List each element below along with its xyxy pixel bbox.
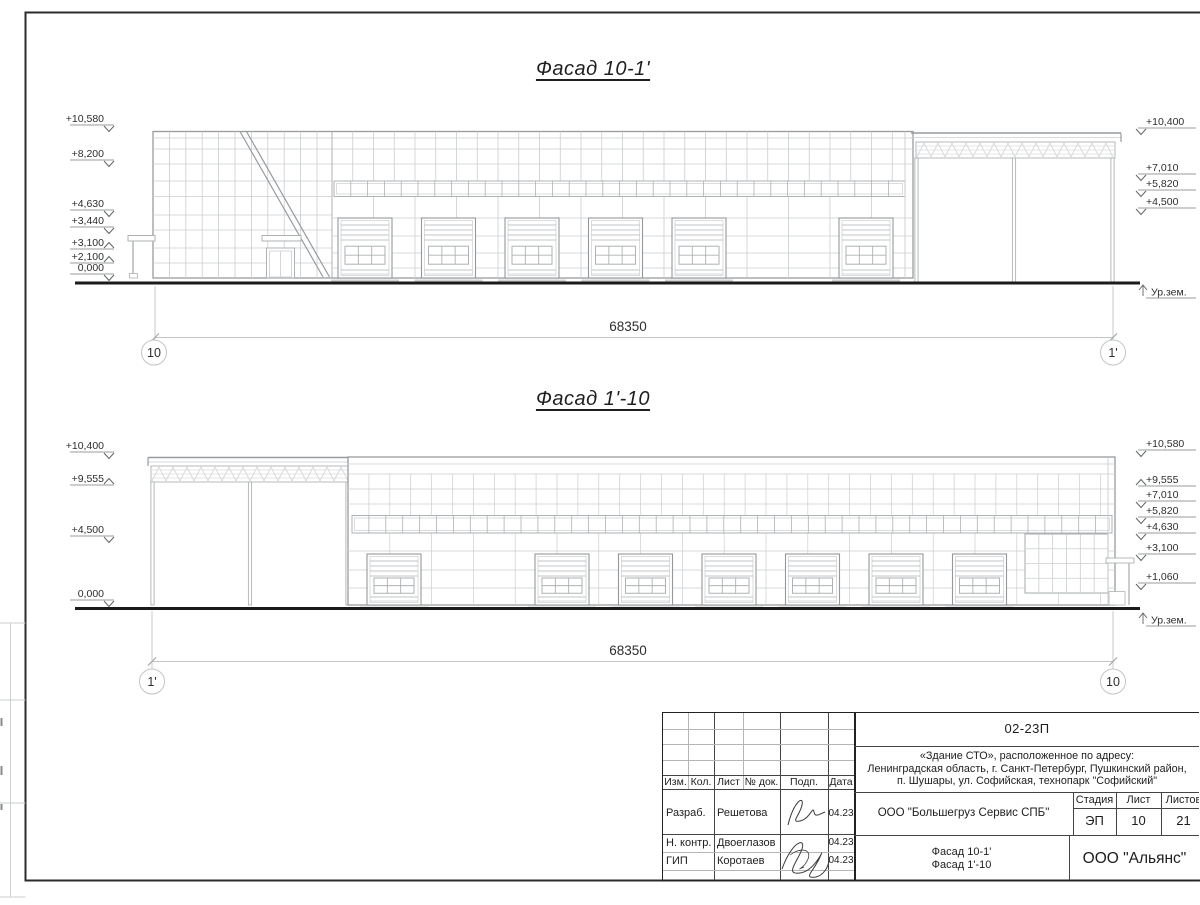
facade2-building [75,457,1140,609]
col-header-doc: № док. [743,775,780,789]
facade1-left-elevation-0: +10,580 [66,113,104,125]
facade2-left-elevation-1: +9,555 [72,473,105,485]
facade2-title: Фасад 1'-10 [0,388,1186,411]
col-header-date: Дата [828,775,854,789]
facade1-right-elevation-2: +5,820 [1146,178,1179,190]
project-address-line1: «Здание СТО», расположенное по адресу: [920,750,1134,762]
facade1-left-elevation-1: +8,200 [72,148,105,160]
total-sheets-label: Листов [1161,792,1199,808]
facade1-title-text: Фасад 10-1' [536,58,650,80]
facade2-right-elevation-5: +3,100 [1146,542,1179,554]
project-address: «Здание СТО», расположенное по адресу: Л… [854,747,1199,791]
facade1-left-elevation-4: +3,100 [72,237,105,249]
facade1-left-elevation-3: +3,440 [72,215,105,227]
name-developer: Решетова [714,801,783,825]
drawing-sheet: 68350101'683501'10+10,580+8,200+4,630+3,… [0,0,1200,900]
facade2-right-elevation-0: +10,580 [1146,438,1184,450]
developer-organization: ООО "Альянс" [1069,835,1199,881]
signature-developer [780,791,828,835]
col-header-list: Лист [714,775,743,789]
total-sheets-value: 21 [1161,808,1199,835]
facade2-left-elevation-3: 0,000 [78,588,104,600]
facade1-building [75,132,1140,284]
facade2-left-elevation-0: +10,400 [66,440,104,452]
sheet-label: Лист [1116,792,1161,808]
role-developer: Разраб. [663,801,717,825]
facade1-right-elevation-1: +7,010 [1146,162,1179,174]
facade2-dimension-value: 68350 [609,643,647,658]
facade2-right-elevation-4: +4,630 [1146,521,1179,533]
facade2-right-elevation-2: +7,010 [1146,489,1179,501]
role-ncontrol: Н. контр. [663,834,717,852]
stage-value: ЭП [1073,808,1116,835]
facade2-right-elevation-3: +5,820 [1146,505,1179,517]
facade2-left-elevation-2: +4,500 [72,524,105,536]
project-address-line2: Ленинградская область, г. Санкт-Петербур… [867,763,1186,775]
date-developer: 04.23 [828,805,854,823]
facade1-dimension-value: 68350 [609,319,647,334]
title-block: Изм. Кол. Лист № док. Подп. Дата Разраб.… [662,712,1199,881]
left-margin-strip [0,623,26,897]
facade1-ground-level-label: Ур.зем. [1151,287,1187,299]
role-gip: ГИП [663,852,717,870]
stage-label: Стадия [1073,792,1116,808]
name-gip: Коротаев [714,852,783,870]
facade1-title: Фасад 10-1' [0,58,1186,81]
facade1-left-elevation-2: +4,630 [72,198,105,210]
sheet-title: Фасад 10-1' Фасад 1'-10 [854,835,1069,881]
sheet-title-line1: Фасад 10-1' [932,846,992,859]
facade1-right-elevation-0: +10,400 [1146,116,1184,128]
facade1-axis-left-bubble-label: 10 [147,346,161,360]
sheet-number: 10 [1116,808,1161,835]
facade2-right-elevation-1: +9,555 [1146,474,1179,486]
facade2-title-text: Фасад 1'-10 [536,388,650,410]
project-address-line3: п. Шушары, ул. Софийская, технопарк "Соф… [897,775,1157,787]
project-code: 02-23П [854,713,1199,746]
facade2-axis-right-bubble-label: 10 [1106,675,1120,689]
facade1-dimension: 68350101' [142,286,1126,365]
signature-approvers [776,831,834,881]
facade2-right-elevation-6: +1,060 [1146,571,1179,583]
facade2-ground-level-label: Ур.зем. [1151,615,1187,627]
facade1-left-elevation-6: 0,000 [78,262,104,274]
name-ncontrol: Двоеглазов [714,834,783,852]
sheet-title-line2: Фасад 1'-10 [932,859,992,872]
facade2-axis-left-bubble-label: 1' [147,675,156,689]
facade2-dimension: 683501'10 [140,611,1126,694]
contractor-name: ООО "Большегруз Сервис СПБ" [854,792,1073,835]
col-header-kol: Кол. [688,775,714,789]
facade1-axis-right-bubble-label: 1' [1108,346,1117,360]
facade1-right-elevation-3: +4,500 [1146,196,1179,208]
col-header-sign: Подп. [780,775,828,789]
col-header-izm: Изм. [663,775,688,789]
